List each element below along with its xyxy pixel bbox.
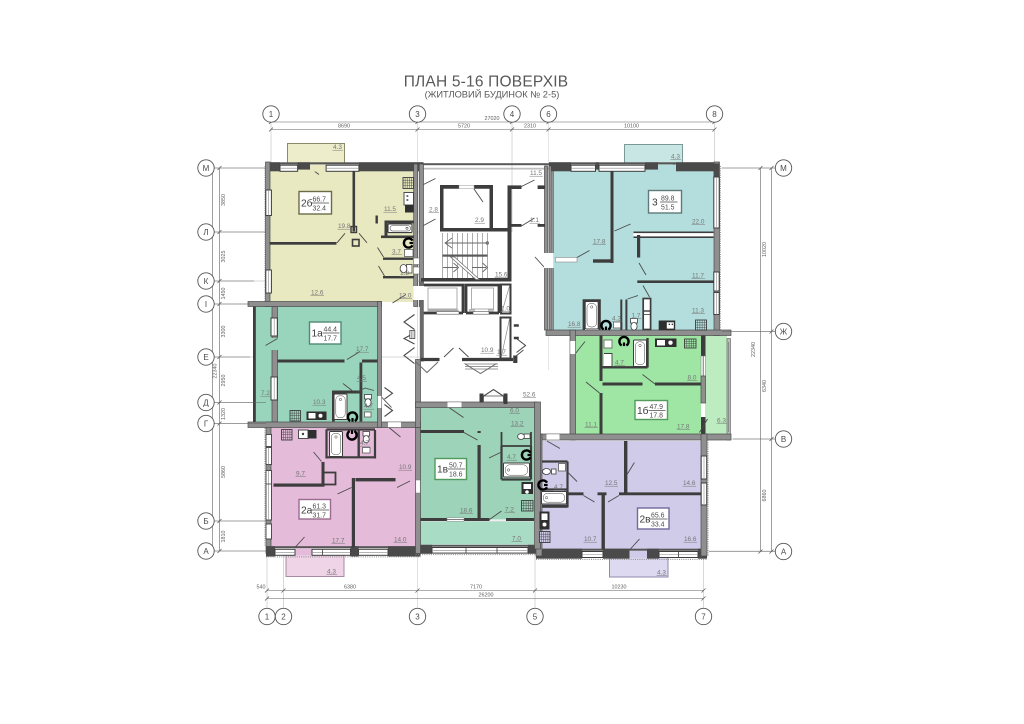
svg-text:8: 8 — [712, 110, 717, 119]
svg-text:Г: Г — [204, 420, 209, 429]
svg-text:5720: 5720 — [458, 124, 470, 130]
svg-text:65.6: 65.6 — [651, 513, 665, 520]
svg-text:1: 1 — [265, 613, 270, 622]
svg-text:Е: Е — [203, 353, 208, 362]
svg-text:Ж: Ж — [780, 328, 788, 337]
svg-text:27020: 27020 — [485, 116, 500, 122]
svg-text:7: 7 — [701, 613, 706, 622]
svg-text:Л: Л — [203, 228, 208, 237]
svg-text:18.6: 18.6 — [449, 472, 463, 479]
svg-text:10100: 10100 — [624, 124, 639, 130]
svg-text:1450: 1450 — [221, 288, 227, 300]
svg-text:32.4: 32.4 — [313, 206, 327, 213]
svg-text:М: М — [203, 164, 210, 173]
svg-text:І: І — [205, 300, 207, 309]
svg-text:26200: 26200 — [479, 593, 494, 599]
svg-text:1а: 1а — [312, 329, 324, 340]
svg-text:89.8: 89.8 — [661, 196, 675, 203]
svg-text:ПЛАН 5-16 ПОВЕРХІВ: ПЛАН 5-16 ПОВЕРХІВ — [404, 74, 569, 91]
svg-text:44.4: 44.4 — [324, 327, 338, 334]
svg-text:А: А — [781, 548, 787, 557]
svg-text:51.5: 51.5 — [661, 205, 675, 212]
svg-text:3300: 3300 — [221, 326, 227, 338]
svg-text:1810: 1810 — [221, 531, 227, 543]
svg-text:1в: 1в — [437, 465, 448, 476]
svg-text:6860: 6860 — [762, 490, 768, 502]
svg-text:22340: 22340 — [751, 342, 757, 357]
svg-text:7170: 7170 — [470, 585, 482, 591]
svg-text:2б: 2б — [301, 198, 313, 210]
svg-text:6: 6 — [546, 110, 551, 119]
svg-text:10020: 10020 — [762, 242, 768, 257]
svg-text:17.7: 17.7 — [324, 336, 338, 343]
svg-text:61.3: 61.3 — [313, 504, 327, 511]
svg-text:Б: Б — [203, 517, 208, 526]
svg-text:5860: 5860 — [221, 466, 227, 478]
svg-text:2310: 2310 — [524, 124, 536, 130]
svg-text:3: 3 — [415, 613, 420, 622]
svg-text:3: 3 — [415, 110, 420, 119]
svg-text:2: 2 — [281, 613, 286, 622]
svg-text:5: 5 — [533, 613, 538, 622]
svg-text:10230: 10230 — [612, 585, 627, 591]
svg-text:31.7: 31.7 — [313, 513, 327, 520]
svg-text:17.8: 17.8 — [650, 413, 664, 420]
svg-text:К: К — [204, 277, 209, 286]
svg-text:В: В — [781, 435, 786, 444]
svg-text:2а: 2а — [301, 506, 313, 517]
svg-text:3025: 3025 — [221, 251, 227, 263]
svg-text:33.4: 33.4 — [651, 522, 665, 529]
svg-text:Д: Д — [203, 399, 209, 408]
svg-text:6340: 6340 — [762, 380, 768, 392]
svg-text:М: М — [780, 164, 787, 173]
svg-text:2в: 2в — [640, 515, 651, 526]
svg-text:6380: 6380 — [344, 585, 356, 591]
svg-text:47.9: 47.9 — [650, 404, 664, 411]
svg-text:А: А — [203, 547, 209, 556]
svg-text:(ЖИТЛОВИЙ БУДИНОК № 2-5): (ЖИТЛОВИЙ БУДИНОК № 2-5) — [425, 89, 560, 100]
svg-text:3: 3 — [652, 198, 658, 209]
svg-text:1320: 1320 — [221, 408, 227, 420]
svg-text:4: 4 — [510, 110, 515, 119]
svg-text:3850: 3850 — [221, 194, 227, 206]
svg-text:8690: 8690 — [338, 124, 350, 130]
svg-text:1б: 1б — [637, 405, 649, 417]
svg-text:50.7: 50.7 — [449, 463, 463, 470]
svg-text:2950: 2950 — [221, 375, 227, 387]
svg-text:540: 540 — [257, 585, 266, 591]
svg-text:1: 1 — [269, 110, 274, 119]
svg-text:22340: 22340 — [213, 364, 219, 379]
svg-text:66.7: 66.7 — [313, 197, 327, 204]
